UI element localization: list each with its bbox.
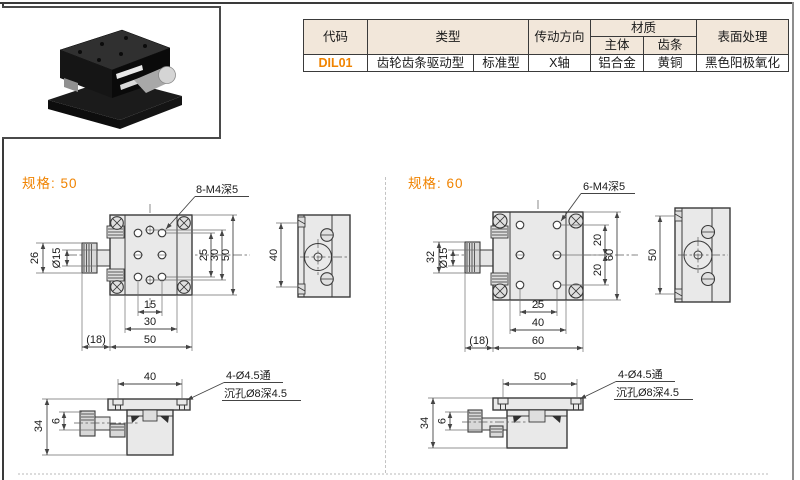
cell-material-rack: 黄铜 [644, 54, 697, 71]
spec60-callout-cbore: 沉孔Ø8深4.5 [616, 386, 679, 399]
dim-30-bottom: 30 [144, 316, 156, 328]
header-surface: 表面处理 [697, 20, 789, 55]
spec-table: 代码 类型 传动方向 材质 表面处理 主体 齿条 DIL01 齿轮齿条驱动型 标… [303, 19, 789, 72]
dim-15: 15 [144, 299, 156, 311]
dim-50-right: 50 [220, 249, 232, 261]
dim-shaft-dia: Ø15 [51, 248, 63, 269]
dim-60-bottom: 60 [532, 335, 544, 347]
header-material: 材质 [591, 20, 697, 37]
dim-40-side: 40 [268, 249, 280, 261]
header-material-body: 主体 [591, 37, 644, 54]
spec50-front-view: 40 4-Ø4.5通 沉孔Ø8深4.5 34 6 [33, 369, 301, 455]
header-direction: 传动方向 [529, 20, 591, 55]
cell-type-sub: 标准型 [474, 54, 529, 71]
header-material-rack: 齿条 [644, 37, 697, 54]
spec60-drawing: 6-M4深5 32 Ø15 20 20 60 25 40 60 [386, 160, 800, 480]
catalog-page: 代码 类型 传动方向 材质 表面处理 主体 齿条 DIL01 齿轮齿条驱动型 标… [0, 0, 800, 480]
cell-material-body: 铝合金 [591, 54, 644, 71]
spec50-callout-hole: 4-Ø4.5通 [226, 369, 271, 382]
spec50-drawing: 8-M4深5 26 Ø15 25 30 50 15 30 [0, 160, 386, 480]
dim-6: 6 [51, 418, 63, 424]
dim-40-front: 40 [144, 371, 156, 383]
dim-20-lower: 20 [592, 264, 604, 276]
dim-18: (18) [469, 335, 489, 347]
dim-6: 6 [437, 418, 449, 424]
dim-50-front: 50 [534, 371, 546, 383]
product-photo [2, 8, 217, 137]
dim-shaft-dia: Ø15 [438, 248, 450, 269]
cell-direction: X轴 [529, 54, 591, 71]
spec50-hole-callout: 8-M4深5 [196, 183, 238, 196]
spec60-hole-callout: 6-M4深5 [583, 180, 625, 193]
spec60-top-view: 6-M4深5 32 Ø15 20 20 60 25 40 60 [425, 180, 638, 352]
cell-code: DIL01 [304, 54, 368, 71]
spec60-side-view: 50 [647, 208, 730, 302]
spec60-callout-hole: 4-Ø4.5通 [618, 368, 663, 381]
dim-26: 26 [29, 252, 41, 264]
dim-34: 34 [33, 420, 45, 432]
spec50-top-view: 8-M4深5 26 Ø15 25 30 50 15 30 [29, 183, 250, 351]
dim-60-right: 60 [604, 249, 616, 261]
dim-25: 25 [532, 299, 544, 311]
dim-18: (18) [86, 334, 106, 346]
dim-32: 32 [425, 251, 437, 263]
header-type: 类型 [368, 20, 529, 55]
spec50-side-view: 40 [268, 215, 350, 297]
page-border-top [0, 2, 794, 4]
dim-34: 34 [419, 417, 431, 429]
dim-50-side: 50 [647, 249, 659, 261]
cell-type-main: 齿轮齿条驱动型 [368, 54, 474, 71]
header-code: 代码 [304, 20, 368, 55]
spec60-front-view: 50 4-Ø4.5通 沉孔Ø8深4.5 34 6 [419, 368, 693, 448]
cell-surface: 黑色阳极氧化 [697, 54, 789, 71]
dim-50-bottom: 50 [144, 334, 156, 346]
dim-20-upper: 20 [592, 234, 604, 246]
spec50-callout-cbore: 沉孔Ø8深4.5 [224, 387, 287, 400]
product-photo-box [2, 6, 221, 139]
dim-40-bottom: 40 [532, 317, 544, 329]
